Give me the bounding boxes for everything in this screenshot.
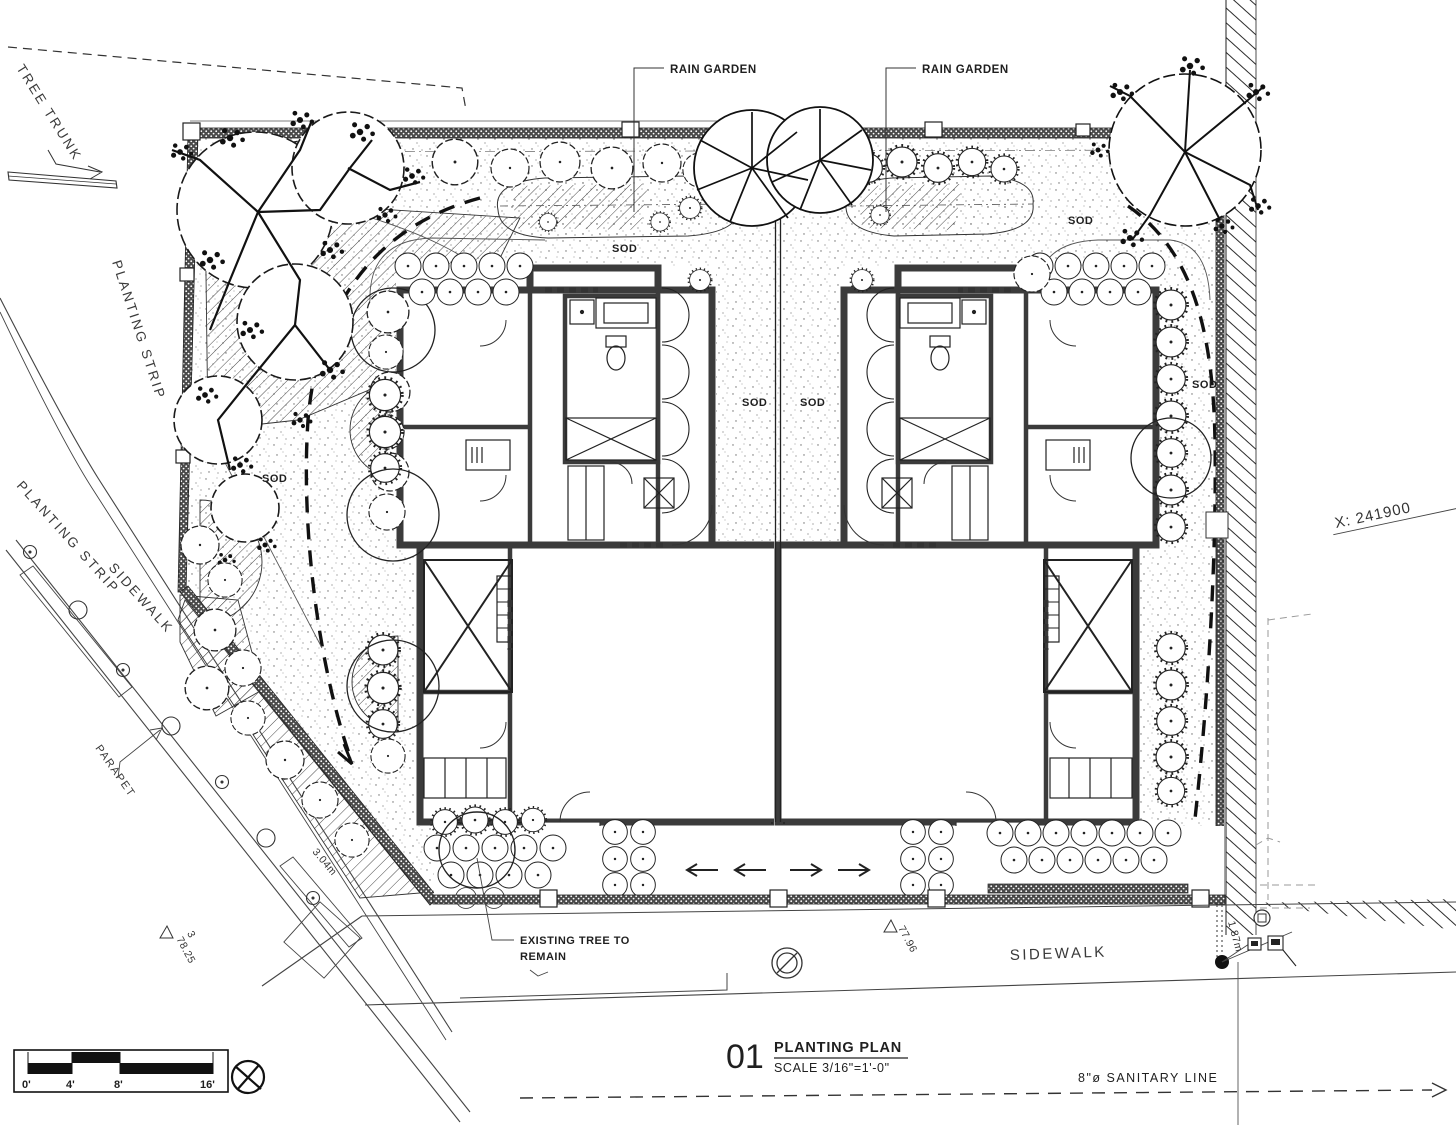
- sanitary-line-label: 8"ø SANITARY LINE: [1078, 1071, 1218, 1085]
- benchmark-b: [160, 926, 173, 938]
- title-block: 01 PLANTING PLAN SCALE 3/16"=1'-0": [726, 1038, 908, 1076]
- sod-label-5: SOD: [1068, 215, 1093, 227]
- parapet-leader: [118, 728, 162, 778]
- scale-tick-4: 4': [66, 1079, 75, 1091]
- parapet-label: PARAPET: [93, 743, 138, 800]
- utility-circle: [1254, 910, 1270, 926]
- elev-b-label: 78.25: [174, 935, 198, 966]
- sod-label-6: SOD: [1192, 379, 1217, 391]
- drawing-scale: SCALE 3/16"=1'-0": [774, 1061, 890, 1075]
- manhole: [772, 948, 802, 978]
- tree-trunk-label: TREE TRUNK: [13, 62, 85, 164]
- existing-tree-label-2: REMAIN: [520, 951, 566, 963]
- scale-tick-16: 16': [200, 1079, 215, 1091]
- meter-boxes: [1248, 936, 1296, 966]
- sod-label-2: SOD: [262, 473, 287, 485]
- north-arrow-icon: [232, 1061, 264, 1093]
- planting-strip-label-lower: PLANTING STRIP: [14, 478, 123, 597]
- plan-sheet: RAIN GARDEN RAIN GARDEN SOD SOD SOD SOD …: [0, 0, 1456, 1125]
- scale-tick-0: 0': [22, 1079, 31, 1091]
- sod-label-1: SOD: [612, 243, 637, 255]
- sanitary-line: 8"ø SANITARY LINE: [520, 1071, 1446, 1098]
- benchmark-a: [884, 920, 897, 932]
- coord-x-label: X: 241900: [1333, 499, 1412, 532]
- tree-trunk-shape: [8, 172, 117, 188]
- existing-tree-label-1: EXISTING TREE TO: [520, 935, 630, 947]
- scale-bar: 0' 4' 8' 16': [14, 1050, 264, 1093]
- drawing-number: 01: [726, 1038, 764, 1076]
- sod-label-3: SOD: [742, 397, 767, 409]
- elev-a-label: 77.96: [895, 924, 919, 955]
- rain-garden-label-right: RAIN GARDEN: [922, 64, 1009, 76]
- sidewalk-label-bottom: SIDEWALK: [1010, 944, 1108, 964]
- scale-tick-8: 8': [114, 1079, 123, 1091]
- property-line-dashed: [8, 47, 466, 110]
- planting-strip-label-upper: PLANTING STRIP: [109, 258, 168, 402]
- rain-garden-label-left: RAIN GARDEN: [670, 64, 757, 76]
- sod-label-4: SOD: [800, 397, 825, 409]
- utility-point: [1215, 932, 1292, 1125]
- site-plan-svg: RAIN GARDEN RAIN GARDEN SOD SOD SOD SOD …: [0, 0, 1456, 1125]
- coord-x-group: X: 241900: [1329, 490, 1456, 535]
- drawing-title: PLANTING PLAN: [774, 1040, 902, 1056]
- sidewalk-label-left: SIDEWALK: [106, 560, 177, 636]
